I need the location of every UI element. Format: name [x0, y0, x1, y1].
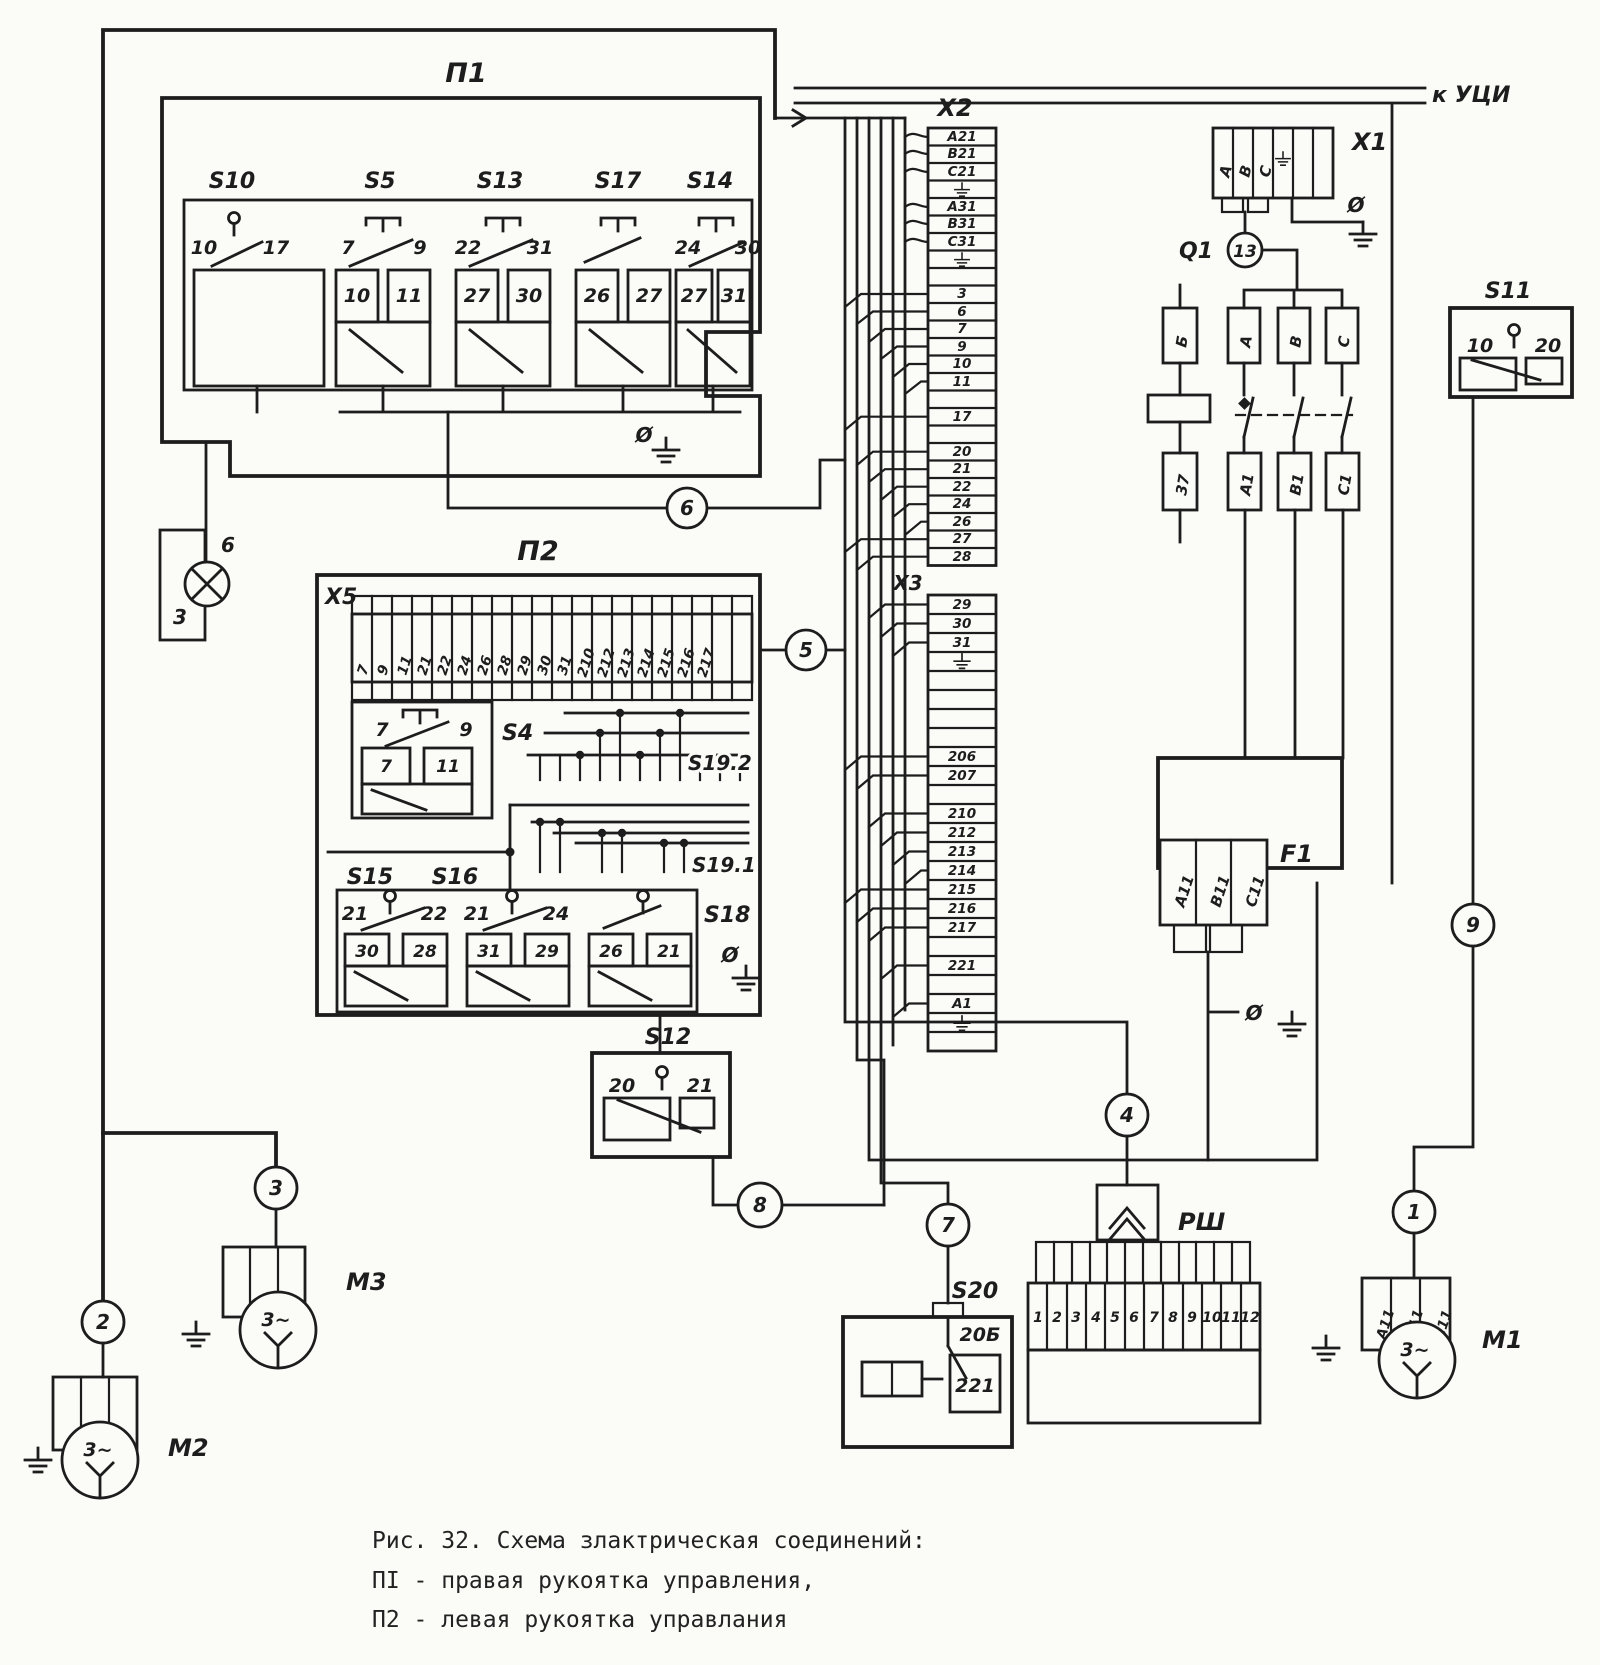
x3-terminal-label: 214 — [948, 863, 976, 879]
svg-text:26: 26 — [599, 942, 623, 962]
pin-icon — [1509, 325, 1520, 348]
svg-text:27: 27 — [636, 285, 663, 307]
svg-text:7: 7 — [375, 719, 389, 741]
switch-s14: 24 30 27 31 — [675, 218, 761, 386]
svg-text:C: C — [1334, 335, 1354, 349]
svg-text:3~: 3~ — [83, 1439, 112, 1461]
x3-terminal-label: 212 — [948, 825, 976, 841]
s19-1-label: S19.1 — [692, 853, 756, 877]
svg-text:4: 4 — [1119, 1103, 1134, 1127]
figure-caption: Рис. 32. Схема злактрическая соединений:… — [372, 1528, 926, 1633]
rsh-terminal-label: 4 — [1090, 1310, 1101, 1326]
s20-block: S20 20Б 221 — [843, 1279, 1012, 1447]
x2-label: X2 — [935, 94, 972, 122]
motor-m2: 3~ M2 — [25, 1377, 209, 1498]
x3-terminal-label: 213 — [948, 844, 976, 860]
tbar-icon — [366, 218, 400, 231]
schematic-page: П1 S10 S5 S13 S17 S14 10 17 7 9 10 11 22… — [0, 0, 1600, 1665]
x2-terminal-label: 28 — [953, 549, 972, 565]
p1-phase-label: Ø — [634, 423, 653, 447]
svg-text:6: 6 — [680, 496, 694, 520]
f1-block: A11 B11 C11 F1 Ø — [1158, 758, 1342, 1036]
x3-terminal-label: 221 — [948, 958, 976, 974]
ground-icon — [25, 1448, 51, 1472]
lamp-unit: 6 3 — [160, 442, 235, 640]
ground-icon — [1313, 1336, 1339, 1360]
x5-strip: 7 9 11 21 22 24 26 28 29 30 31 210 212 2… — [352, 596, 752, 700]
x3-terminal-label: A1 — [951, 996, 972, 1012]
s10-label: S10 — [209, 169, 255, 194]
svg-text:22: 22 — [455, 237, 481, 259]
s18-label: S18 — [704, 903, 750, 928]
m3-label: M3 — [346, 1268, 387, 1296]
m2-label: M2 — [168, 1434, 209, 1462]
x2-terminal-label: B31 — [947, 216, 976, 232]
x2-terminal-label: 17 — [953, 409, 972, 425]
s4-label: S4 — [502, 721, 533, 746]
tbar-icon — [486, 218, 520, 231]
x2-terminal-label: 24 — [953, 496, 972, 512]
ground-icon — [1350, 222, 1376, 246]
svg-text:20: 20 — [1535, 335, 1561, 357]
svg-text:1: 1 — [1407, 1200, 1421, 1224]
svg-text:27: 27 — [464, 285, 491, 307]
ground-icon — [955, 253, 969, 266]
s16-label: S16 — [432, 865, 478, 890]
svg-text:10: 10 — [1467, 335, 1493, 357]
s15-label: S15 — [347, 865, 393, 890]
motor-m1: A11 B11 C11 3~ M1 — [1313, 1278, 1523, 1398]
rsh-terminal-label: 7 — [1149, 1310, 1159, 1326]
switch-s11: S11 10 20 — [1450, 279, 1572, 397]
pin-icon — [657, 1067, 668, 1090]
svg-text:C1: C1 — [1334, 472, 1355, 496]
rsh-block: РШ 1 2 3 4 5 6 7 8 9 10 11 12 — [1028, 1185, 1260, 1423]
svg-text:7: 7 — [941, 1213, 955, 1237]
contact-marker-icon — [1238, 397, 1251, 410]
svg-text:13: 13 — [1233, 242, 1257, 262]
rsh-label: РШ — [1178, 1208, 1226, 1236]
pin-icon — [229, 213, 240, 236]
x1-block: A B C X1 Ø — [1213, 128, 1387, 246]
svg-text:7: 7 — [341, 237, 355, 259]
p2-title: П2 — [517, 536, 558, 567]
rsh-terminal-label: 3 — [1071, 1310, 1081, 1326]
svg-text:7: 7 — [380, 757, 392, 777]
svg-text:21: 21 — [657, 942, 681, 962]
svg-text:9: 9 — [1466, 913, 1480, 937]
x2-terminal-label: 11 — [953, 374, 972, 390]
pin-icon — [507, 891, 518, 914]
f1-label: F1 — [1280, 840, 1313, 868]
s17-label: S17 — [595, 169, 642, 194]
s20-contact-label: 20Б — [960, 1324, 1001, 1346]
rsh-terminal-label: 2 — [1052, 1310, 1062, 1326]
s20-label: S20 — [952, 1279, 998, 1304]
p2-block: П2 X5 7 9 11 21 22 24 26 28 29 30 31 210… — [317, 536, 760, 1015]
ground-icon — [653, 438, 679, 462]
svg-text:24: 24 — [675, 237, 701, 259]
lamp-bottom-label: 3 — [173, 605, 187, 629]
x5-terminal-label: 7 — [355, 663, 373, 677]
x3-terminal-label: 215 — [948, 882, 976, 898]
x2-terminal-label: 21 — [953, 461, 972, 477]
svg-text:8: 8 — [753, 1193, 767, 1217]
ground-icon — [954, 1016, 970, 1030]
x2-terminal-label: 22 — [953, 479, 972, 495]
wire-tags: 6 5 8 7 4 9 1 2 3 — [82, 488, 1494, 1343]
rsh-terminal-label: 5 — [1110, 1310, 1120, 1326]
ground-icon — [954, 654, 970, 668]
p1-title: П1 — [445, 58, 486, 89]
svg-text:27: 27 — [681, 285, 708, 307]
svg-text:Б: Б — [1172, 334, 1192, 348]
svg-text:21: 21 — [464, 903, 490, 925]
x2-terminal-label: 10 — [953, 356, 972, 372]
x1-phase-label: Ø — [1346, 193, 1365, 217]
switch-s10: 10 17 — [191, 213, 324, 387]
switch-s17: 26 27 — [576, 218, 670, 386]
main-wiring — [103, 30, 1473, 1377]
s5-label: S5 — [364, 169, 395, 194]
svg-text:21: 21 — [342, 903, 368, 925]
s19-2-label: S19.2 — [688, 751, 752, 775]
rsh-terminal-label: 6 — [1129, 1310, 1139, 1326]
x3-terminal-label: 207 — [948, 768, 977, 784]
svg-text:9: 9 — [459, 719, 472, 741]
caption-line-3: П2 - левая рукоятка управлания — [372, 1607, 787, 1633]
x2-terminal-label: A31 — [946, 199, 976, 215]
caption-line-1: Рис. 32. Схема злактрическая соединений: — [372, 1528, 926, 1554]
x2-terminal-label: 27 — [953, 531, 972, 547]
x3-terminal-label: 30 — [953, 616, 972, 632]
p1-block: П1 S10 S5 S13 S17 S14 10 17 7 9 10 11 22… — [162, 58, 761, 476]
ground-icon — [733, 966, 759, 990]
svg-text:B: B — [1286, 334, 1306, 348]
svg-text:11: 11 — [436, 757, 460, 777]
x2-terminal-label: 26 — [953, 514, 972, 530]
svg-text:2: 2 — [96, 1310, 110, 1334]
tbar-icon — [403, 710, 437, 723]
s20-box-label: 221 — [955, 1375, 995, 1397]
svg-text:5: 5 — [799, 638, 813, 662]
p2-lower-switch-box: 21 22 30 28 21 24 31 29 26 21 — [337, 890, 697, 1012]
ground-icon — [955, 183, 969, 196]
pin-icon — [638, 891, 649, 914]
svg-text:30: 30 — [516, 285, 542, 307]
svg-text:9: 9 — [413, 237, 426, 259]
svg-text:11: 11 — [396, 285, 422, 307]
svg-text:17: 17 — [263, 237, 290, 259]
svg-text:3~: 3~ — [1400, 1339, 1429, 1361]
svg-text:31: 31 — [477, 942, 501, 962]
ground-icon — [1279, 1012, 1305, 1036]
rsh-terminal-label: 1 — [1033, 1310, 1043, 1326]
to-uci-label: к УЦИ — [1432, 83, 1510, 108]
switch-s19-2: S19.2 — [528, 709, 752, 780]
plug-arrow-icon — [1110, 1208, 1144, 1239]
caption-line-2: ПI - правая рукоятка управления, — [372, 1568, 815, 1594]
svg-text:20: 20 — [609, 1075, 635, 1097]
rsh-terminal-label: 12 — [1240, 1310, 1259, 1326]
p2-phase-label: Ø — [720, 943, 739, 967]
x2-terminal-label: C21 — [948, 164, 977, 180]
m1-label: M1 — [1482, 1326, 1523, 1354]
lamp-top-label: 6 — [221, 533, 235, 557]
x2-terminal-label: C31 — [948, 234, 977, 250]
x3-terminal-label: 206 — [948, 749, 976, 765]
tbar-icon — [699, 218, 733, 231]
svg-text:10: 10 — [344, 285, 370, 307]
svg-text:3~: 3~ — [261, 1309, 290, 1331]
x2-terminal-label: 20 — [953, 444, 972, 460]
rsh-terminal-label: 11 — [1221, 1310, 1240, 1326]
svg-text:10: 10 — [191, 237, 217, 259]
uci-bus: к УЦИ — [1432, 83, 1510, 108]
x5-terminal-label: 217 — [695, 646, 719, 679]
x3-terminal-label: 31 — [953, 635, 972, 651]
svg-text:29: 29 — [535, 942, 559, 962]
x2-terminal-label: 6 — [957, 304, 966, 320]
q1-contactor: Q1 13 Б A B C 37 A1 B1 C1 — [1148, 233, 1359, 758]
ground-icon — [1276, 152, 1290, 165]
svg-text:30: 30 — [735, 237, 761, 259]
switch-s12: S12 20 21 — [592, 1025, 730, 1157]
x3-terminal-label: 216 — [948, 901, 976, 917]
s12-label: S12 — [645, 1025, 691, 1050]
x2-terminal-label: 7 — [957, 321, 967, 337]
f1-phase-label: Ø — [1244, 1001, 1263, 1025]
rsh-terminal-label: 8 — [1168, 1310, 1178, 1326]
x1-label: X1 — [1350, 128, 1387, 156]
s14-label: S14 — [687, 169, 733, 194]
rsh-terminal-label: 9 — [1187, 1310, 1197, 1326]
svg-text:28: 28 — [413, 942, 437, 962]
svg-text:A: A — [1236, 334, 1256, 350]
x2-terminal-label: A21 — [946, 129, 976, 145]
svg-text:B1: B1 — [1286, 472, 1308, 497]
switch-s5: 7 9 10 11 — [336, 218, 430, 386]
switch-s13: 22 31 27 30 — [455, 218, 553, 386]
x2-terminal-label: 9 — [957, 339, 966, 355]
ground-icon — [183, 1322, 209, 1346]
svg-text:37: 37 — [1172, 472, 1193, 496]
svg-text:26: 26 — [584, 285, 610, 307]
svg-text:3: 3 — [269, 1176, 283, 1200]
x2-terminal-label: 3 — [957, 286, 966, 302]
q1-label: Q1 — [1179, 239, 1213, 264]
svg-text:31: 31 — [721, 285, 747, 307]
x3-terminal-label: 217 — [948, 920, 977, 936]
schematic-figure: П1 S10 S5 S13 S17 S14 10 17 7 9 10 11 22… — [0, 0, 1600, 1665]
motor-m3: 3~ M3 — [183, 1247, 387, 1368]
x3-terminal-label: 210 — [948, 806, 976, 822]
s13-label: S13 — [477, 169, 523, 194]
x5-terminal-label: 9 — [375, 663, 393, 677]
svg-text:30: 30 — [355, 942, 379, 962]
rsh-terminal-label: 10 — [1202, 1310, 1222, 1326]
x3-terminal-label: 29 — [953, 597, 972, 613]
x3-label: X3 — [891, 571, 922, 595]
svg-text:A1: A1 — [1236, 472, 1258, 498]
pin-icon — [385, 891, 396, 914]
s11-label: S11 — [1485, 279, 1531, 304]
x2-terminal-label: B21 — [947, 146, 976, 162]
tbar-icon — [601, 218, 635, 231]
svg-text:21: 21 — [687, 1075, 713, 1097]
switch-s4: 7 9 7 11 S4 — [352, 702, 533, 818]
